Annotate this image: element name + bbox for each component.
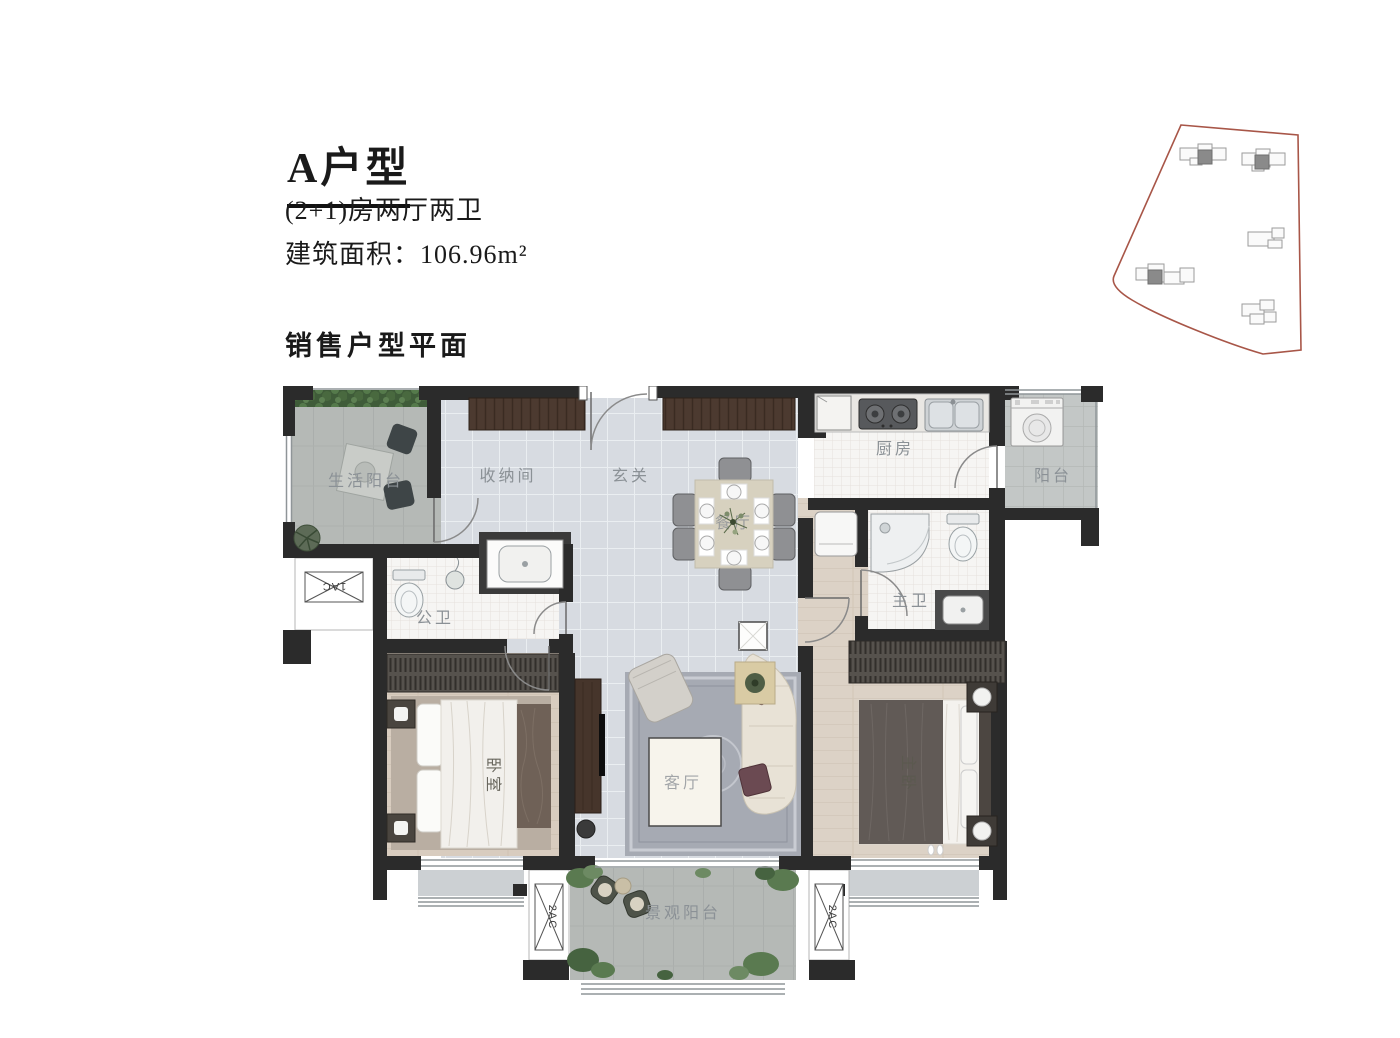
storage-cabinet bbox=[469, 398, 585, 430]
section-label: 销售户型平面 bbox=[285, 324, 471, 363]
pillow bbox=[417, 704, 443, 766]
room-label-living: 客厅 bbox=[664, 774, 702, 792]
ac-label-2-right: 2AC bbox=[826, 905, 838, 929]
ac-label-1: 1AC bbox=[322, 580, 346, 592]
room-label-life-balcony2: 生活阳台 bbox=[328, 472, 404, 490]
room-label-public-bath: 公卫 bbox=[416, 610, 454, 627]
ac-label-2-left: 2AC bbox=[546, 905, 558, 929]
wardrobe bbox=[849, 641, 1005, 683]
floor-plan-drawing: 生活阳台 生活阳台 收纳间 玄关 厨房 阳台 公卫 主卫 卧室 主卧 客厅 餐厅… bbox=[283, 386, 1105, 1016]
tv bbox=[599, 714, 605, 776]
foyer-cabinet bbox=[663, 398, 795, 430]
room-label-storage: 收纳间 bbox=[479, 467, 536, 485]
room-bedroom bbox=[387, 654, 559, 850]
chair bbox=[719, 458, 751, 482]
wardrobe bbox=[387, 654, 559, 692]
room-label-view-balcony: 景观阳台 bbox=[645, 904, 721, 922]
plan-subtitle-rooms: (2+1)房两厅两卫 bbox=[285, 190, 483, 227]
plan-subtitle-area: 建筑面积：106.96m² bbox=[285, 234, 528, 271]
toilet-tank bbox=[947, 514, 979, 524]
floor-plan: 生活阳台 生活阳台 收纳间 玄关 厨房 阳台 公卫 主卫 卧室 主卧 客厅 餐厅… bbox=[283, 386, 1105, 1016]
room-balcony-right bbox=[1011, 398, 1063, 446]
room-label-balcony: 阳台 bbox=[1034, 467, 1072, 485]
bed-side-panel bbox=[517, 704, 551, 828]
stool bbox=[577, 820, 595, 838]
shower-head bbox=[446, 571, 464, 589]
fridge bbox=[817, 396, 851, 430]
bay-window-right bbox=[849, 870, 979, 896]
chair bbox=[673, 528, 697, 560]
shower-head bbox=[880, 523, 890, 533]
room-label-kitchen: 厨房 bbox=[876, 440, 914, 458]
chair bbox=[673, 494, 697, 526]
hedge-strip bbox=[293, 390, 441, 407]
chair bbox=[771, 528, 795, 560]
toilet bbox=[949, 527, 977, 561]
toilet-tank bbox=[393, 570, 425, 580]
room-kitchen bbox=[815, 394, 989, 432]
site-plan-map bbox=[1100, 92, 1395, 367]
small-table bbox=[615, 878, 631, 894]
pillow bbox=[417, 770, 443, 832]
bay-window-left bbox=[418, 870, 524, 896]
pillow bbox=[961, 706, 977, 764]
tv-cabinet bbox=[575, 679, 601, 813]
room-label-master-bedroom: 主卧 bbox=[899, 755, 917, 793]
room-master-bedroom bbox=[849, 641, 1005, 855]
room-label-foyer: 玄关 bbox=[612, 467, 650, 485]
room-label-bedroom: 卧室 bbox=[484, 757, 502, 795]
room-label-master-bath: 主卫 bbox=[892, 592, 930, 610]
chair bbox=[719, 566, 751, 590]
cushion bbox=[738, 763, 772, 797]
hall-cabinet bbox=[815, 512, 857, 556]
chair bbox=[771, 494, 795, 526]
site-plan-drawing bbox=[1100, 92, 1395, 367]
